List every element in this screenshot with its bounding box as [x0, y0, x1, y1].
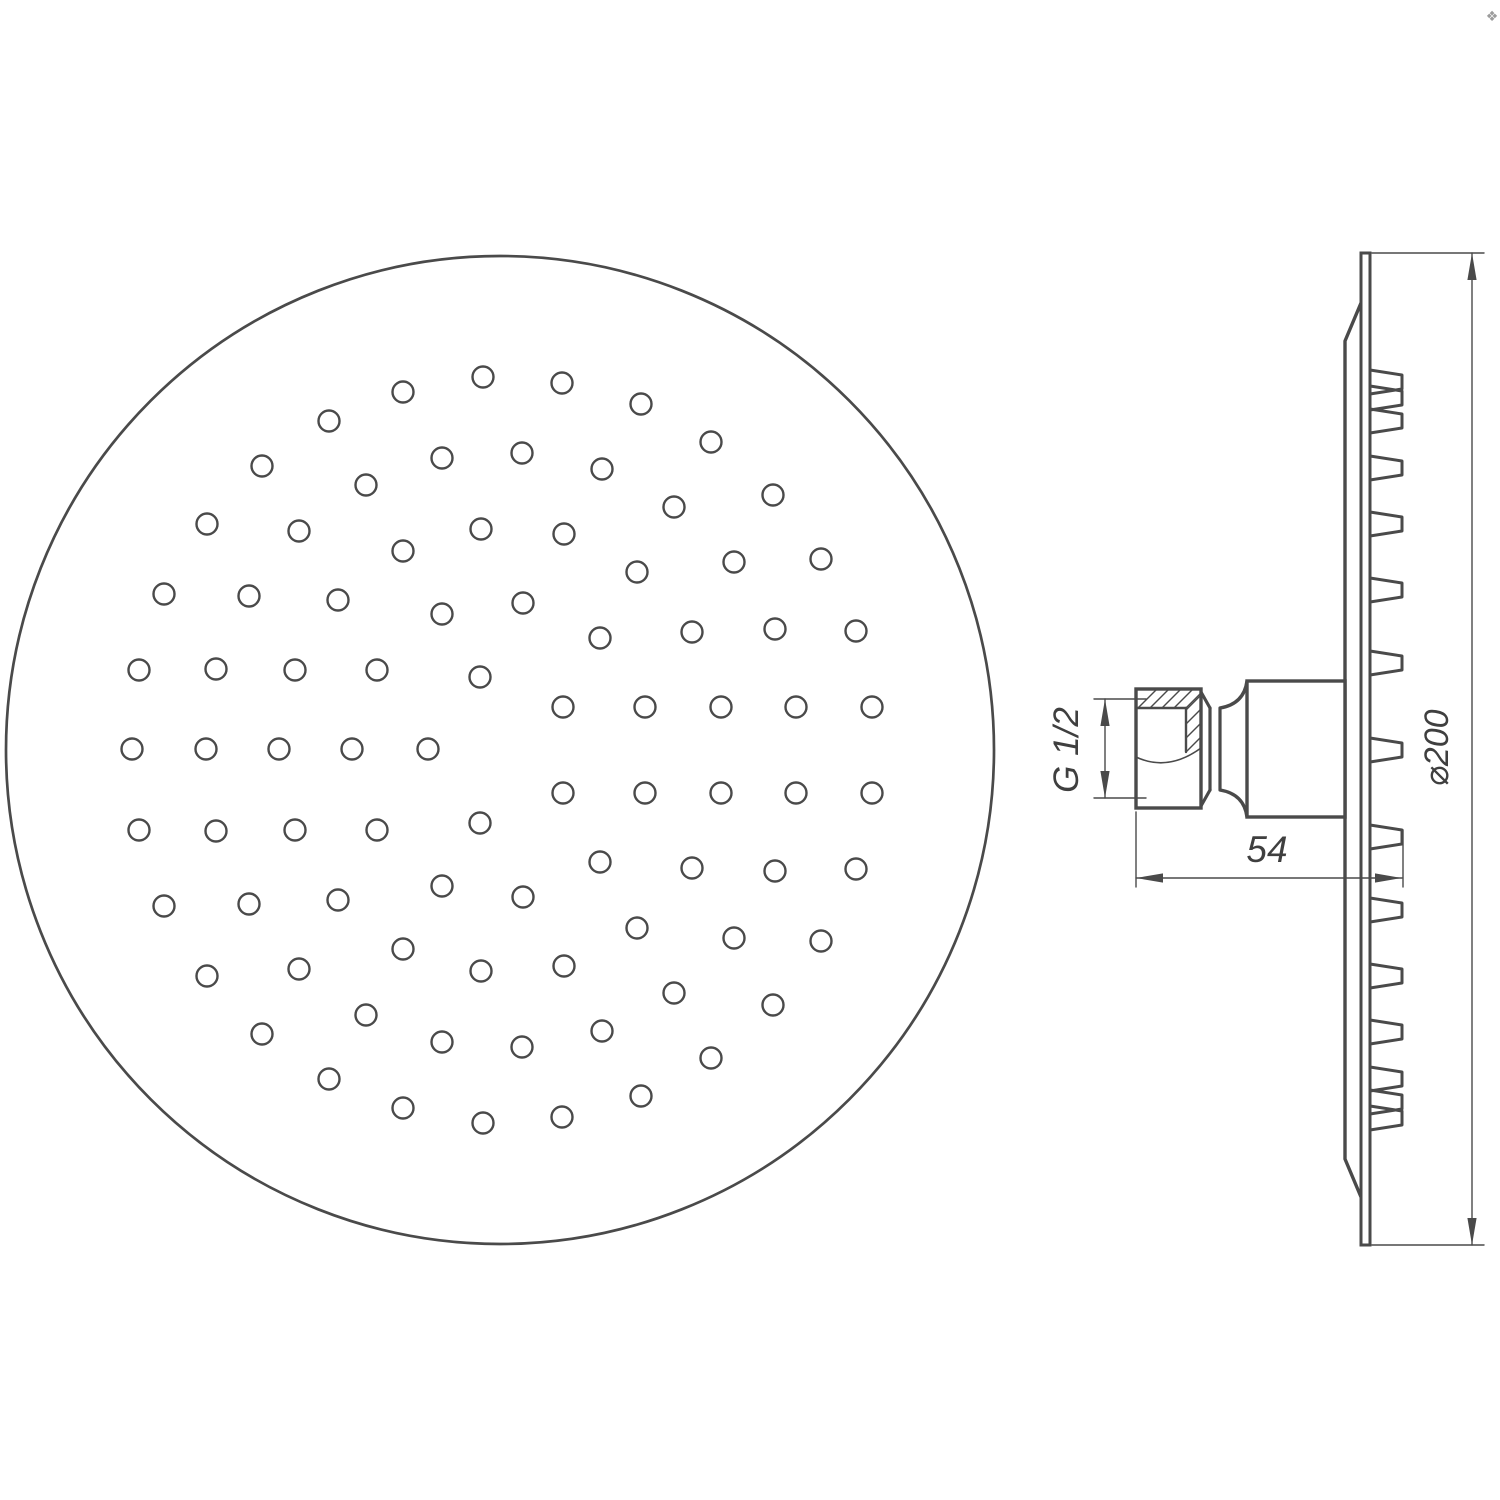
- nozzle-hole: [627, 562, 648, 583]
- nozzle-hole: [328, 590, 349, 611]
- nozzle-hole: [635, 697, 656, 718]
- nozzle-hole: [432, 876, 453, 897]
- nozzle-hole: [552, 373, 573, 394]
- nozzle-hole: [592, 1021, 613, 1042]
- nozzle-hole: [627, 918, 648, 939]
- nozzle-profile: [1370, 651, 1402, 675]
- nozzle-hole: [470, 667, 491, 688]
- back-shell-outline: [1345, 303, 1361, 1197]
- nozzle-hole: [432, 448, 453, 469]
- nozzle-hole: [197, 966, 218, 987]
- nozzle-hole: [473, 1113, 494, 1134]
- nozzle-hole: [367, 660, 388, 681]
- diameter-dimension-label: ⌀200: [1418, 709, 1456, 786]
- nozzle-hole: [590, 628, 611, 649]
- dim-arrow: [1100, 699, 1109, 726]
- nozzle-hole: [356, 1005, 377, 1026]
- nozzle-hole: [197, 514, 218, 535]
- nozzle-hole: [393, 1098, 414, 1119]
- nozzle-hole: [846, 621, 867, 642]
- nozzle-hole: [289, 521, 310, 542]
- nozzle-hole: [129, 660, 150, 681]
- nozzle-hole: [393, 541, 414, 562]
- nozzle-hole: [631, 394, 652, 415]
- nozzle-profile: [1370, 1020, 1402, 1044]
- nozzle-hole: [635, 783, 656, 804]
- nozzle-hole: [664, 983, 685, 1004]
- nozzle-hole: [154, 584, 175, 605]
- nozzle-hole: [367, 820, 388, 841]
- nozzle-hole: [252, 456, 273, 477]
- nozzle-profile: [1370, 409, 1402, 433]
- side-view-plate: [1361, 253, 1370, 1245]
- dim-arrow: [1375, 873, 1402, 882]
- nozzle-hole: [711, 783, 732, 804]
- nozzle-hole: [196, 739, 217, 760]
- nozzle-hole: [319, 411, 340, 432]
- nozzle-profile: [1370, 578, 1402, 602]
- nozzle-hole: [786, 783, 807, 804]
- nozzle-hole: [763, 485, 784, 506]
- nozzle-hole: [682, 622, 703, 643]
- shower-face-outline: [6, 256, 994, 1244]
- nozzle-hole: [862, 697, 883, 718]
- nozzle-profile: [1370, 1106, 1402, 1130]
- nozzle-hole: [285, 660, 306, 681]
- nozzle-hole: [471, 519, 492, 540]
- nozzle-hole: [701, 1048, 722, 1069]
- drawing-page: G 1/254⌀200❖: [0, 0, 1500, 1500]
- watermark-icon: ❖: [1486, 9, 1499, 25]
- nozzle-hole: [682, 858, 703, 879]
- nozzle-hole: [711, 697, 732, 718]
- dim-arrow: [1136, 873, 1163, 882]
- nozzle-hole: [631, 1086, 652, 1107]
- nozzle-hole: [393, 939, 414, 960]
- nozzle-hole: [552, 1107, 573, 1128]
- dim-arrow: [1467, 1218, 1476, 1245]
- nozzle-hole: [592, 459, 613, 480]
- nozzle-hole: [811, 931, 832, 952]
- nozzle-profile: [1370, 738, 1402, 762]
- nozzle-hole: [763, 995, 784, 1016]
- nozzle-profile: [1370, 964, 1402, 988]
- nozzle-hole: [554, 524, 575, 545]
- nozzle-hole: [319, 1069, 340, 1090]
- nozzle-hole: [285, 820, 306, 841]
- nozzle-hole: [513, 887, 534, 908]
- nozzle-hole: [269, 739, 290, 760]
- nozzle-hole: [664, 497, 685, 518]
- nozzle-hole: [765, 861, 786, 882]
- dim-arrow: [1467, 253, 1476, 280]
- connector-flare: [1220, 790, 1247, 817]
- nozzle-hole: [724, 928, 745, 949]
- nozzle-hole: [206, 659, 227, 680]
- nozzle-hole: [701, 432, 722, 453]
- nozzle-hole: [590, 852, 611, 873]
- nozzle-hole: [418, 739, 439, 760]
- nozzle-hole: [393, 382, 414, 403]
- nozzle-hole: [356, 475, 377, 496]
- nozzle-hole: [513, 593, 534, 614]
- nozzle-hole: [811, 549, 832, 570]
- nozzle-profile: [1370, 512, 1402, 536]
- nozzle-hole: [553, 783, 574, 804]
- nozzle-profile: [1370, 898, 1402, 922]
- nozzle-hole: [724, 552, 745, 573]
- nozzle-hole: [471, 961, 492, 982]
- nozzle-hole: [862, 783, 883, 804]
- nozzle-hole: [239, 586, 260, 607]
- nozzle-hole: [553, 697, 574, 718]
- nozzle-hole: [470, 813, 491, 834]
- nozzle-hole: [289, 959, 310, 980]
- nozzle-hole: [342, 739, 363, 760]
- nozzle-profile: [1370, 825, 1402, 849]
- nozzle-hole: [786, 697, 807, 718]
- technical-drawing-canvas: G 1/254⌀200❖: [0, 0, 1500, 1500]
- nozzle-hole: [206, 821, 227, 842]
- thread-size-label: G 1/2: [1047, 707, 1086, 793]
- dim-arrow: [1100, 771, 1109, 798]
- nozzle-profile: [1370, 456, 1402, 480]
- nozzle-profile: [1370, 386, 1402, 410]
- nozzle-hole: [239, 894, 260, 915]
- nozzle-hole: [554, 956, 575, 977]
- nozzle-hole: [432, 1032, 453, 1053]
- nozzle-hole: [154, 896, 175, 917]
- nozzle-hole: [512, 443, 533, 464]
- connector-flare: [1220, 681, 1247, 708]
- nozzle-hole: [252, 1024, 273, 1045]
- mount-block: [1247, 681, 1345, 817]
- nozzle-hole: [473, 367, 494, 388]
- depth-dimension-label: 54: [1246, 829, 1287, 870]
- nozzle-hole: [765, 619, 786, 640]
- nozzle-hole: [846, 859, 867, 880]
- nozzle-hole: [122, 739, 143, 760]
- nozzle-profile: [1370, 1067, 1402, 1091]
- nozzle-hole: [328, 890, 349, 911]
- nozzle-hole: [129, 820, 150, 841]
- nozzle-hole: [512, 1037, 533, 1058]
- nozzle-hole: [432, 604, 453, 625]
